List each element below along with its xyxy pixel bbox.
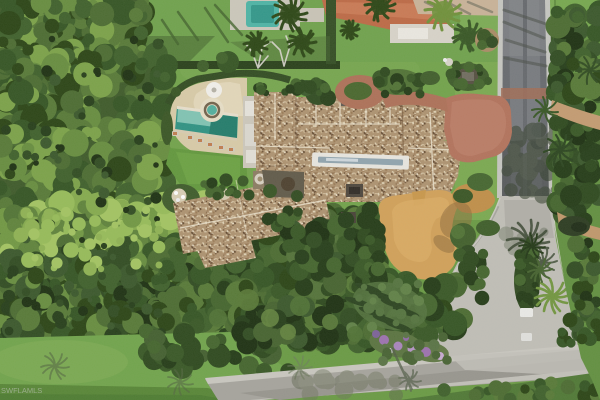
svg-text:SWFLAMLS: SWFLAMLS [1, 386, 42, 395]
